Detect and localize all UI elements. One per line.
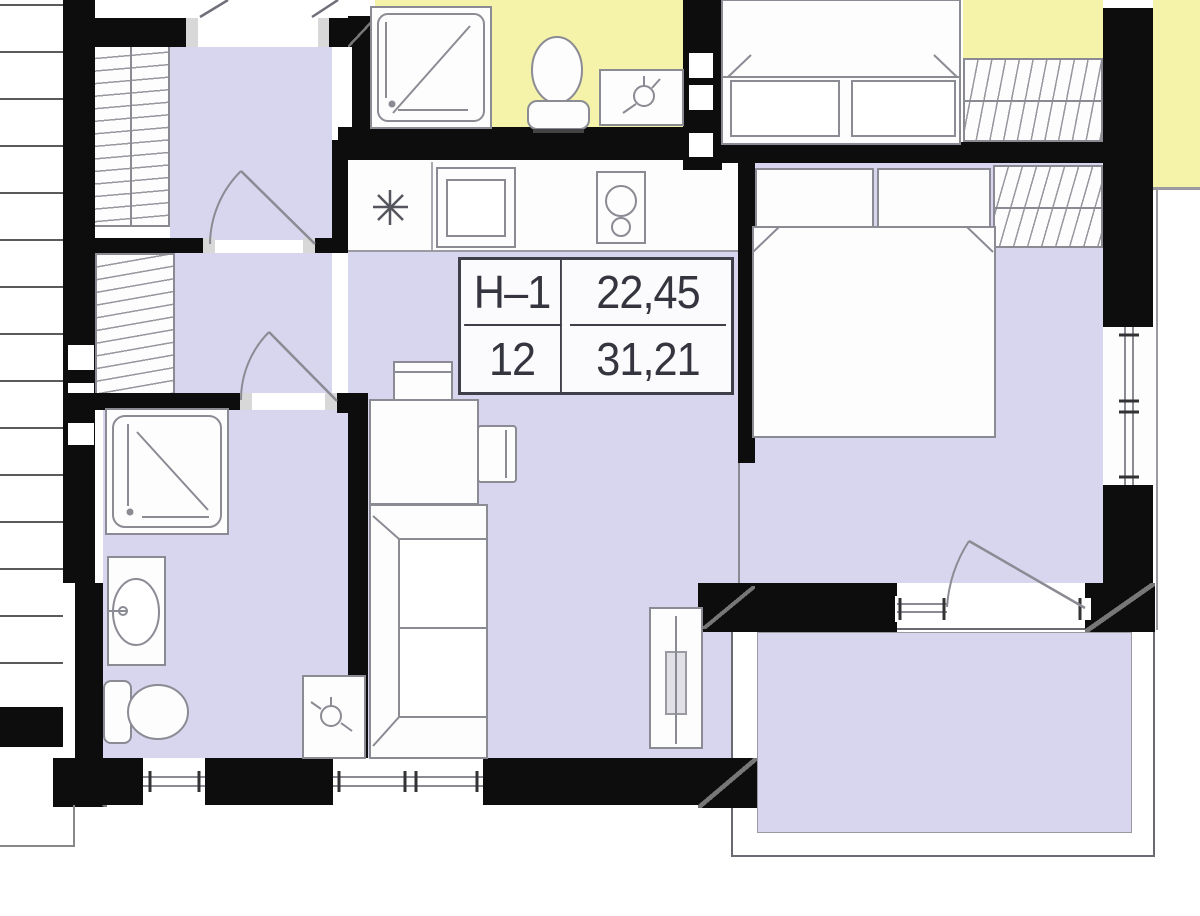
bedroom-opening-line: [738, 463, 740, 583]
unit-code: Н–1: [464, 260, 562, 326]
wall-segment: [205, 758, 333, 805]
neighbor-bathroom-area: [375, 0, 683, 127]
door-jamb: [325, 393, 337, 410]
wall-segment: [53, 758, 143, 805]
wall-segment: [0, 707, 63, 747]
wall-segment: [329, 18, 350, 47]
vent-opening: [68, 423, 94, 445]
wall-segment: [738, 150, 755, 463]
window-bottom-left: [143, 771, 205, 792]
room-balcony: [757, 632, 1132, 833]
kitchen-counter: [348, 160, 738, 252]
wardrobe-hallway: [90, 45, 170, 227]
wall-segment: [348, 400, 368, 758]
door-jamb: [318, 18, 329, 47]
neighbor-room-area-2: [1153, 0, 1200, 187]
vent-opening: [689, 85, 713, 110]
window-bottom-right: [333, 771, 483, 792]
entry-door-arc: [200, 0, 338, 17]
wall-segment: [63, 393, 240, 410]
wall-segment: [352, 45, 375, 130]
wardrobe-divider: [130, 47, 132, 225]
vent-opening: [689, 53, 713, 78]
unit-area-total: 31,21: [570, 326, 726, 392]
neighbor-area-edge-line: [1153, 187, 1200, 190]
wall-segment: [722, 142, 1153, 163]
wall-corner: [698, 758, 757, 808]
unit-label-box: Н–1 22,45 12 31,21: [458, 257, 734, 395]
wall-segment: [95, 18, 198, 47]
wall-segment: [75, 583, 103, 758]
vent-opening: [68, 345, 94, 370]
wall-corner: [348, 16, 377, 47]
door-jamb: [240, 393, 252, 410]
wall-segment: [315, 238, 348, 253]
door-jamb: [186, 18, 198, 47]
wardrobe-corridor: [95, 253, 175, 397]
wall-corner: [1085, 583, 1155, 632]
unit-number: 12: [464, 326, 562, 392]
building-outline-right: [1156, 190, 1158, 630]
wall-segment: [483, 758, 698, 805]
door-jamb: [303, 238, 315, 253]
floor-plan: Н–1 22,45 12 31,21: [0, 0, 1200, 916]
wall-segment: [63, 0, 95, 583]
room-connector: [348, 252, 368, 400]
wall-segment: [1103, 485, 1153, 583]
staircase: [0, 4, 63, 720]
neighbor-room-area-1: [963, 0, 1103, 58]
wall-segment: [338, 127, 687, 160]
wall-segment: [1103, 8, 1153, 327]
wardrobe-bedroom: [993, 165, 1103, 248]
room-bathroom: [103, 410, 348, 758]
vent-opening: [689, 133, 713, 157]
wall-segment: [63, 238, 203, 253]
building-outline-step: [0, 805, 75, 847]
bedroom-doorway: [738, 463, 755, 583]
room-hallway: [170, 47, 332, 240]
wardrobe-divider: [965, 100, 1101, 102]
wall-corner: [703, 586, 755, 629]
wardrobe-neighbor: [963, 58, 1103, 142]
door-jamb: [203, 238, 215, 253]
bedroom-window: [1103, 327, 1155, 485]
bed-neighbor: [722, 0, 960, 144]
wardrobe-divider: [995, 207, 1101, 209]
unit-area-living: 22,45: [570, 260, 726, 326]
